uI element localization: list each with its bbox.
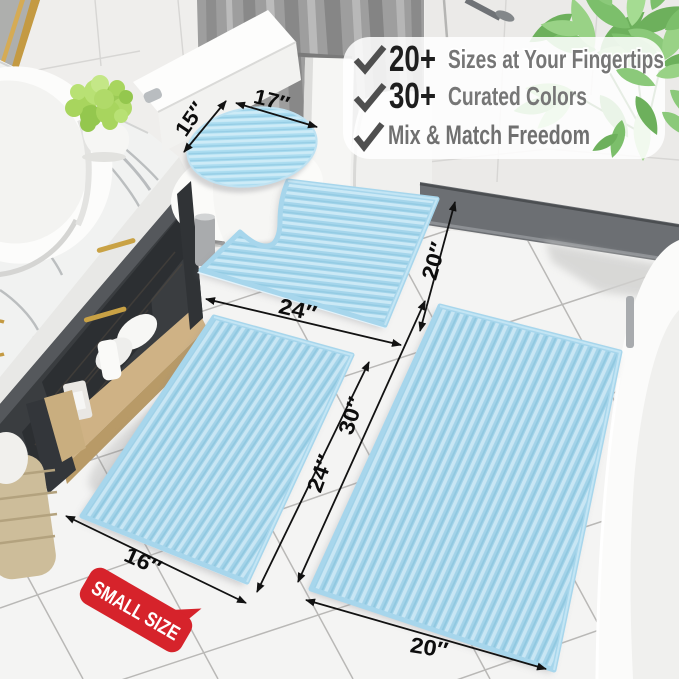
svg-text:20+: 20+ bbox=[389, 38, 436, 79]
svg-text:30+: 30+ bbox=[389, 75, 436, 116]
svg-text:Curated Colors: Curated Colors bbox=[448, 81, 587, 111]
svg-text:Mix & Match Freedom: Mix & Match Freedom bbox=[388, 120, 590, 150]
